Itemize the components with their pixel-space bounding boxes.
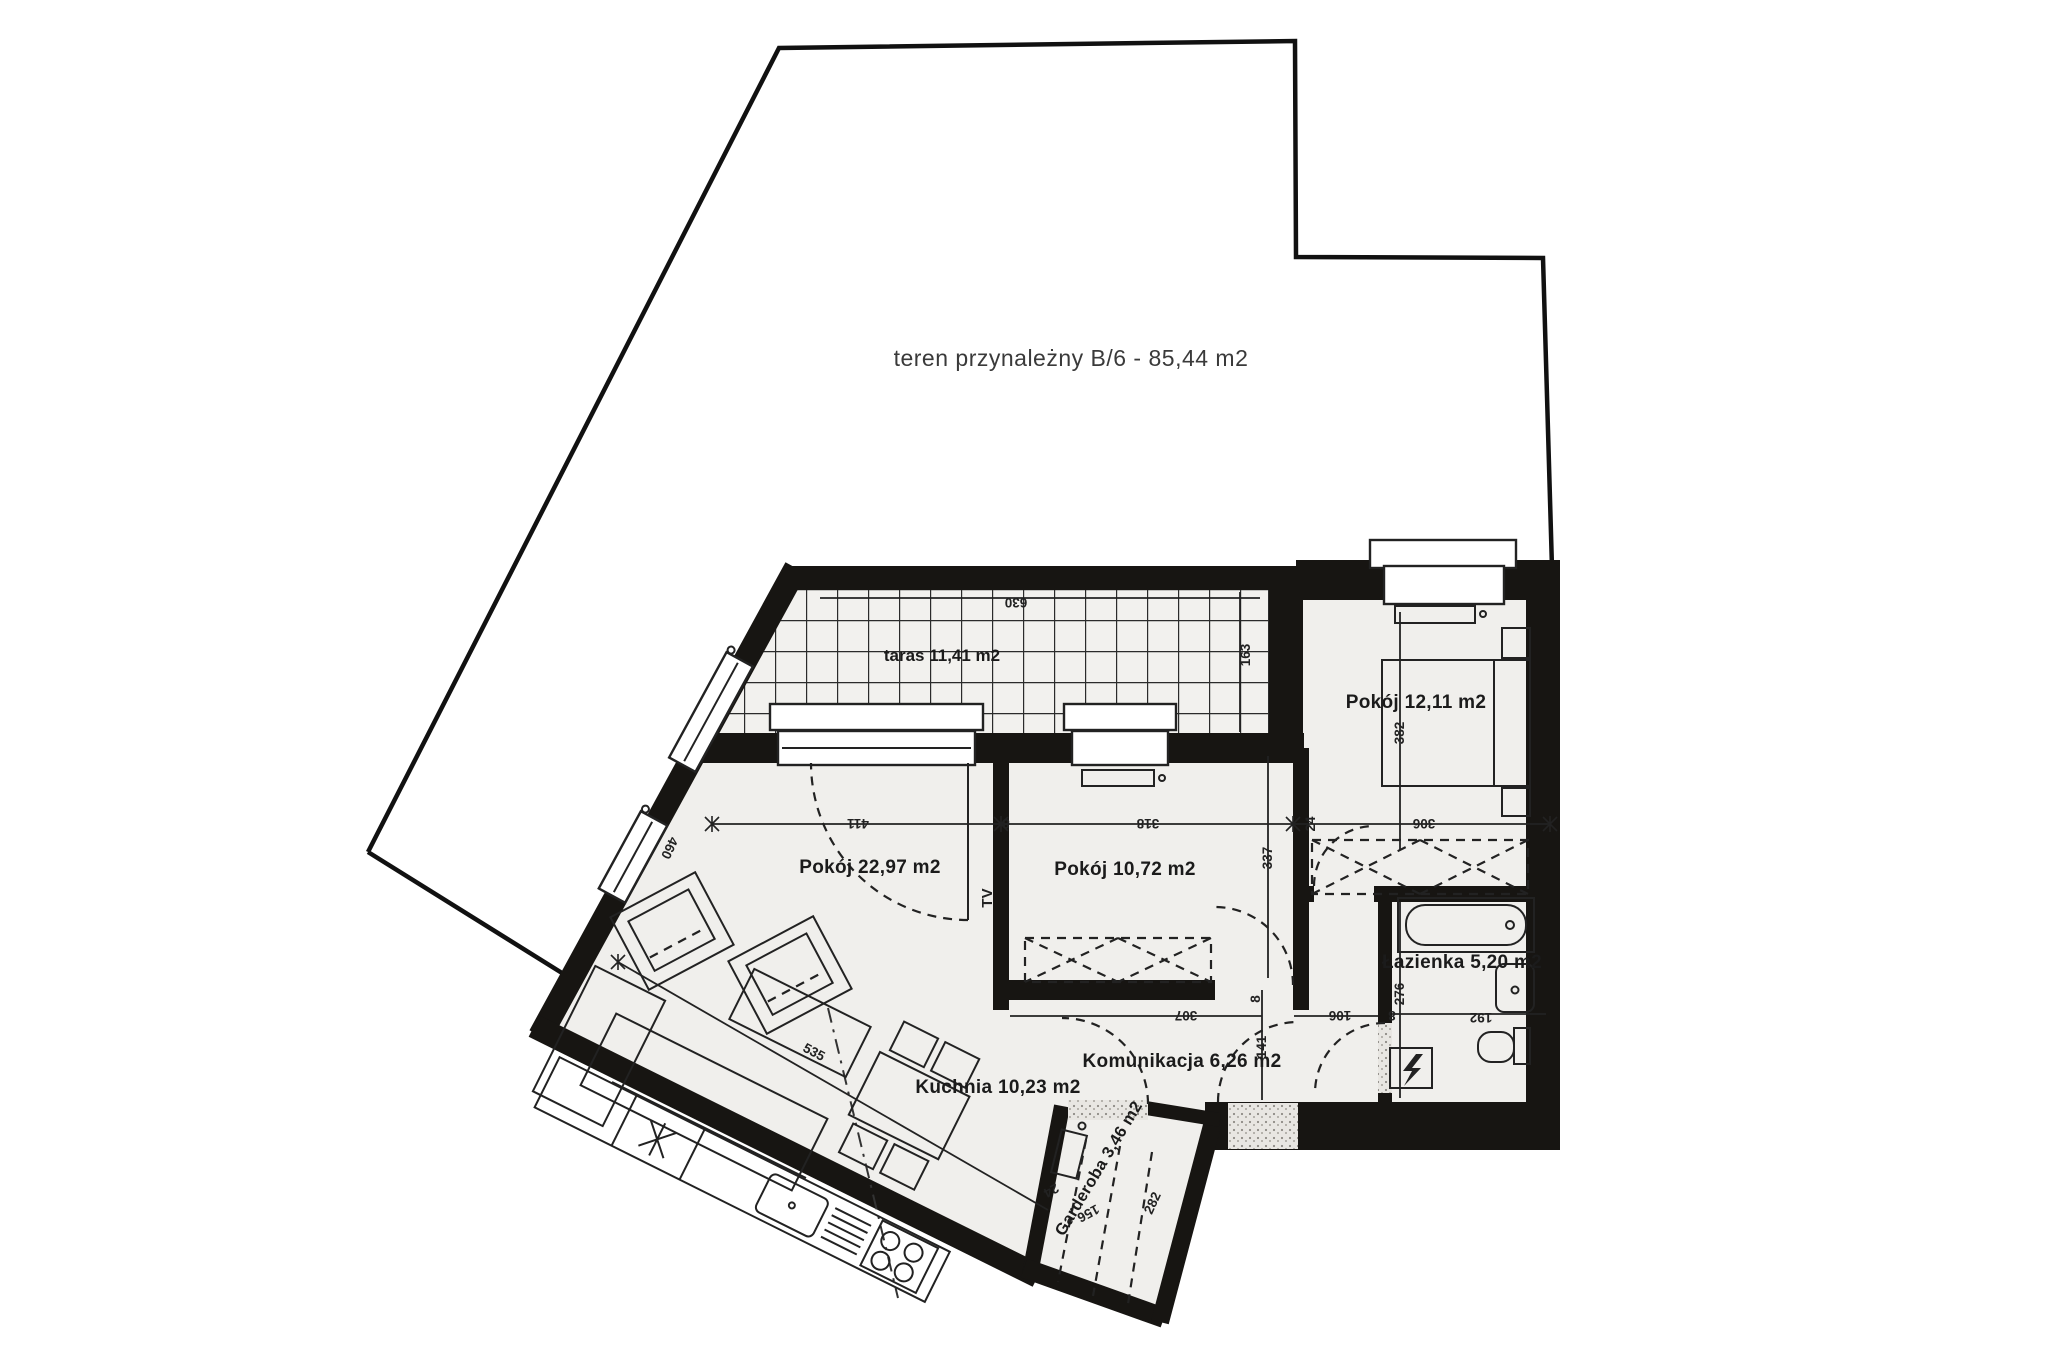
balcony-door-sill xyxy=(770,704,983,730)
room12-window-sill xyxy=(1370,540,1516,568)
label-komunikacja: Komunikacja 6,26 m2 xyxy=(1083,1051,1282,1072)
dim-8-wall1: 8 xyxy=(1002,816,1010,831)
kitchen-sink xyxy=(754,1172,830,1238)
label-taras: taras 11,41 m2 xyxy=(884,646,1000,665)
label-lazienka: Łazienka 5,20 m2 xyxy=(1382,952,1542,973)
floorplan-svg: teren przynależny B/6 - 85,44 m2 xyxy=(0,0,2048,1365)
dim-106: 106 xyxy=(1328,1008,1351,1023)
room12-window xyxy=(1384,566,1504,604)
dim-192: 192 xyxy=(1470,1010,1493,1025)
drainer-lines xyxy=(821,1208,871,1254)
dim-8-wall2: 8 xyxy=(1248,995,1263,1003)
dim-630: 630 xyxy=(1005,595,1028,610)
terrain-outline-bottom xyxy=(368,852,570,978)
dim-382: 382 xyxy=(1392,722,1407,745)
room10-window-sill xyxy=(1064,704,1176,730)
label-pokoj-12: Pokój 12,11 m2 xyxy=(1346,692,1486,713)
floorplan-page: teren przynależny B/6 - 85,44 m2 xyxy=(0,0,2048,1365)
dim-163: 163 xyxy=(1238,643,1253,666)
label-pokoj-22: Pokój 22,97 m2 xyxy=(799,857,941,878)
dim-318: 318 xyxy=(1136,816,1159,831)
terrain-label: teren przynależny B/6 - 85,44 m2 xyxy=(894,345,1249,371)
entry-threshold xyxy=(1228,1103,1298,1149)
dim-276: 276 xyxy=(1392,982,1407,1005)
room10-window xyxy=(1072,731,1168,765)
dim-306: 306 xyxy=(1412,816,1435,831)
label-tv: TV xyxy=(979,888,996,907)
label-pokoj-10: Pokój 10,72 m2 xyxy=(1054,859,1196,880)
dim-337: 337 xyxy=(1260,847,1275,870)
dim-8-wall3: 8 xyxy=(1388,1008,1396,1023)
label-kuchnia: Kuchnia 10,23 m2 xyxy=(915,1077,1080,1098)
dim-24-wall: 24 xyxy=(1303,816,1318,832)
dim-411: 411 xyxy=(847,816,869,831)
dim-307: 307 xyxy=(1175,1008,1198,1023)
